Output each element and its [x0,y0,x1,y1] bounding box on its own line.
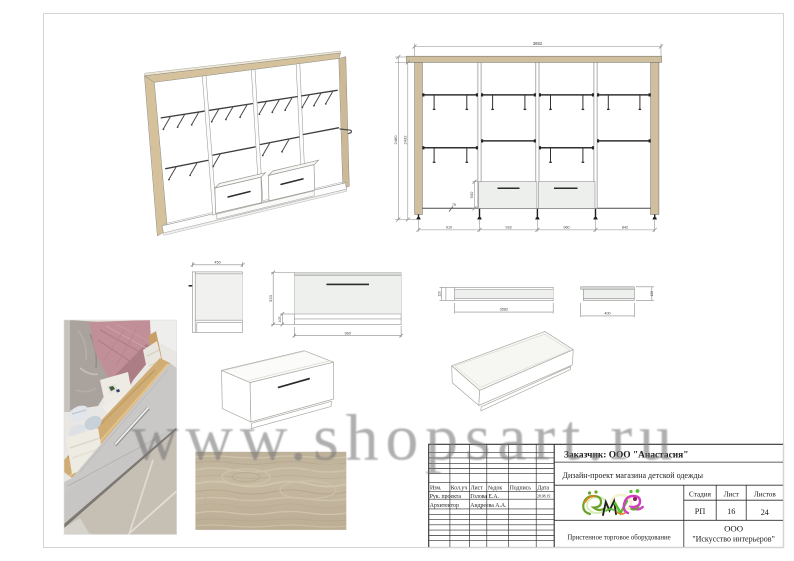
svg-text:3582: 3582 [500,308,508,312]
svg-text:Подпись: Подпись [510,486,532,492]
svg-text:Листов: Листов [754,491,777,499]
svg-text:120: 120 [438,291,442,297]
svg-text:№док: №док [488,486,502,492]
svg-text:3882: 3882 [533,41,543,46]
svg-text:75: 75 [452,203,456,207]
svg-text:Дата: Дата [538,486,550,492]
svg-text:2432: 2432 [403,135,408,145]
svg-text:www.shopsart.ru: www.shopsart.ru [131,402,672,475]
svg-text:Дизайн-проект магазина детской: Дизайн-проект магазина детской одежды [563,471,704,480]
svg-text:Архитектор: Архитектор [430,503,459,509]
svg-text:Изм.: Изм. [430,486,442,492]
svg-text:16: 16 [727,507,735,516]
svg-text:910: 910 [446,225,452,229]
svg-text:24: 24 [761,508,769,517]
svg-text:Голова Е.А.: Голова Е.А. [470,494,499,500]
svg-text:500: 500 [469,191,474,198]
svg-text:400: 400 [604,312,610,316]
svg-text:842: 842 [622,225,628,229]
svg-text:"Искусство интерьеров": "Искусство интерьеров" [692,534,775,543]
svg-text:Лист: Лист [724,491,740,499]
svg-text:2480: 2480 [393,135,398,145]
svg-text:Кол.уч: Кол.уч [451,486,468,492]
svg-text:ООО: ООО [724,524,743,534]
svg-text:Рук. проекта: Рук. проекта [430,494,462,500]
svg-text:120: 120 [650,291,654,297]
svg-text:520: 520 [268,294,273,301]
svg-text:Лист: Лист [471,486,484,492]
svg-text:Андреева А.А.: Андреева А.А. [470,503,507,509]
svg-text:РП: РП [695,507,706,516]
svg-text:105: 105 [278,317,282,323]
svg-text:Стадия: Стадия [689,491,712,499]
svg-text:960: 960 [345,331,351,335]
svg-text:28.08.19.: 28.08.19. [537,494,551,498]
svg-text:Пристенное торговое оборудован: Пристенное торговое оборудование [567,535,670,542]
svg-text:918: 918 [505,225,511,229]
svg-text:450: 450 [214,260,220,264]
svg-text:960: 960 [563,225,569,229]
